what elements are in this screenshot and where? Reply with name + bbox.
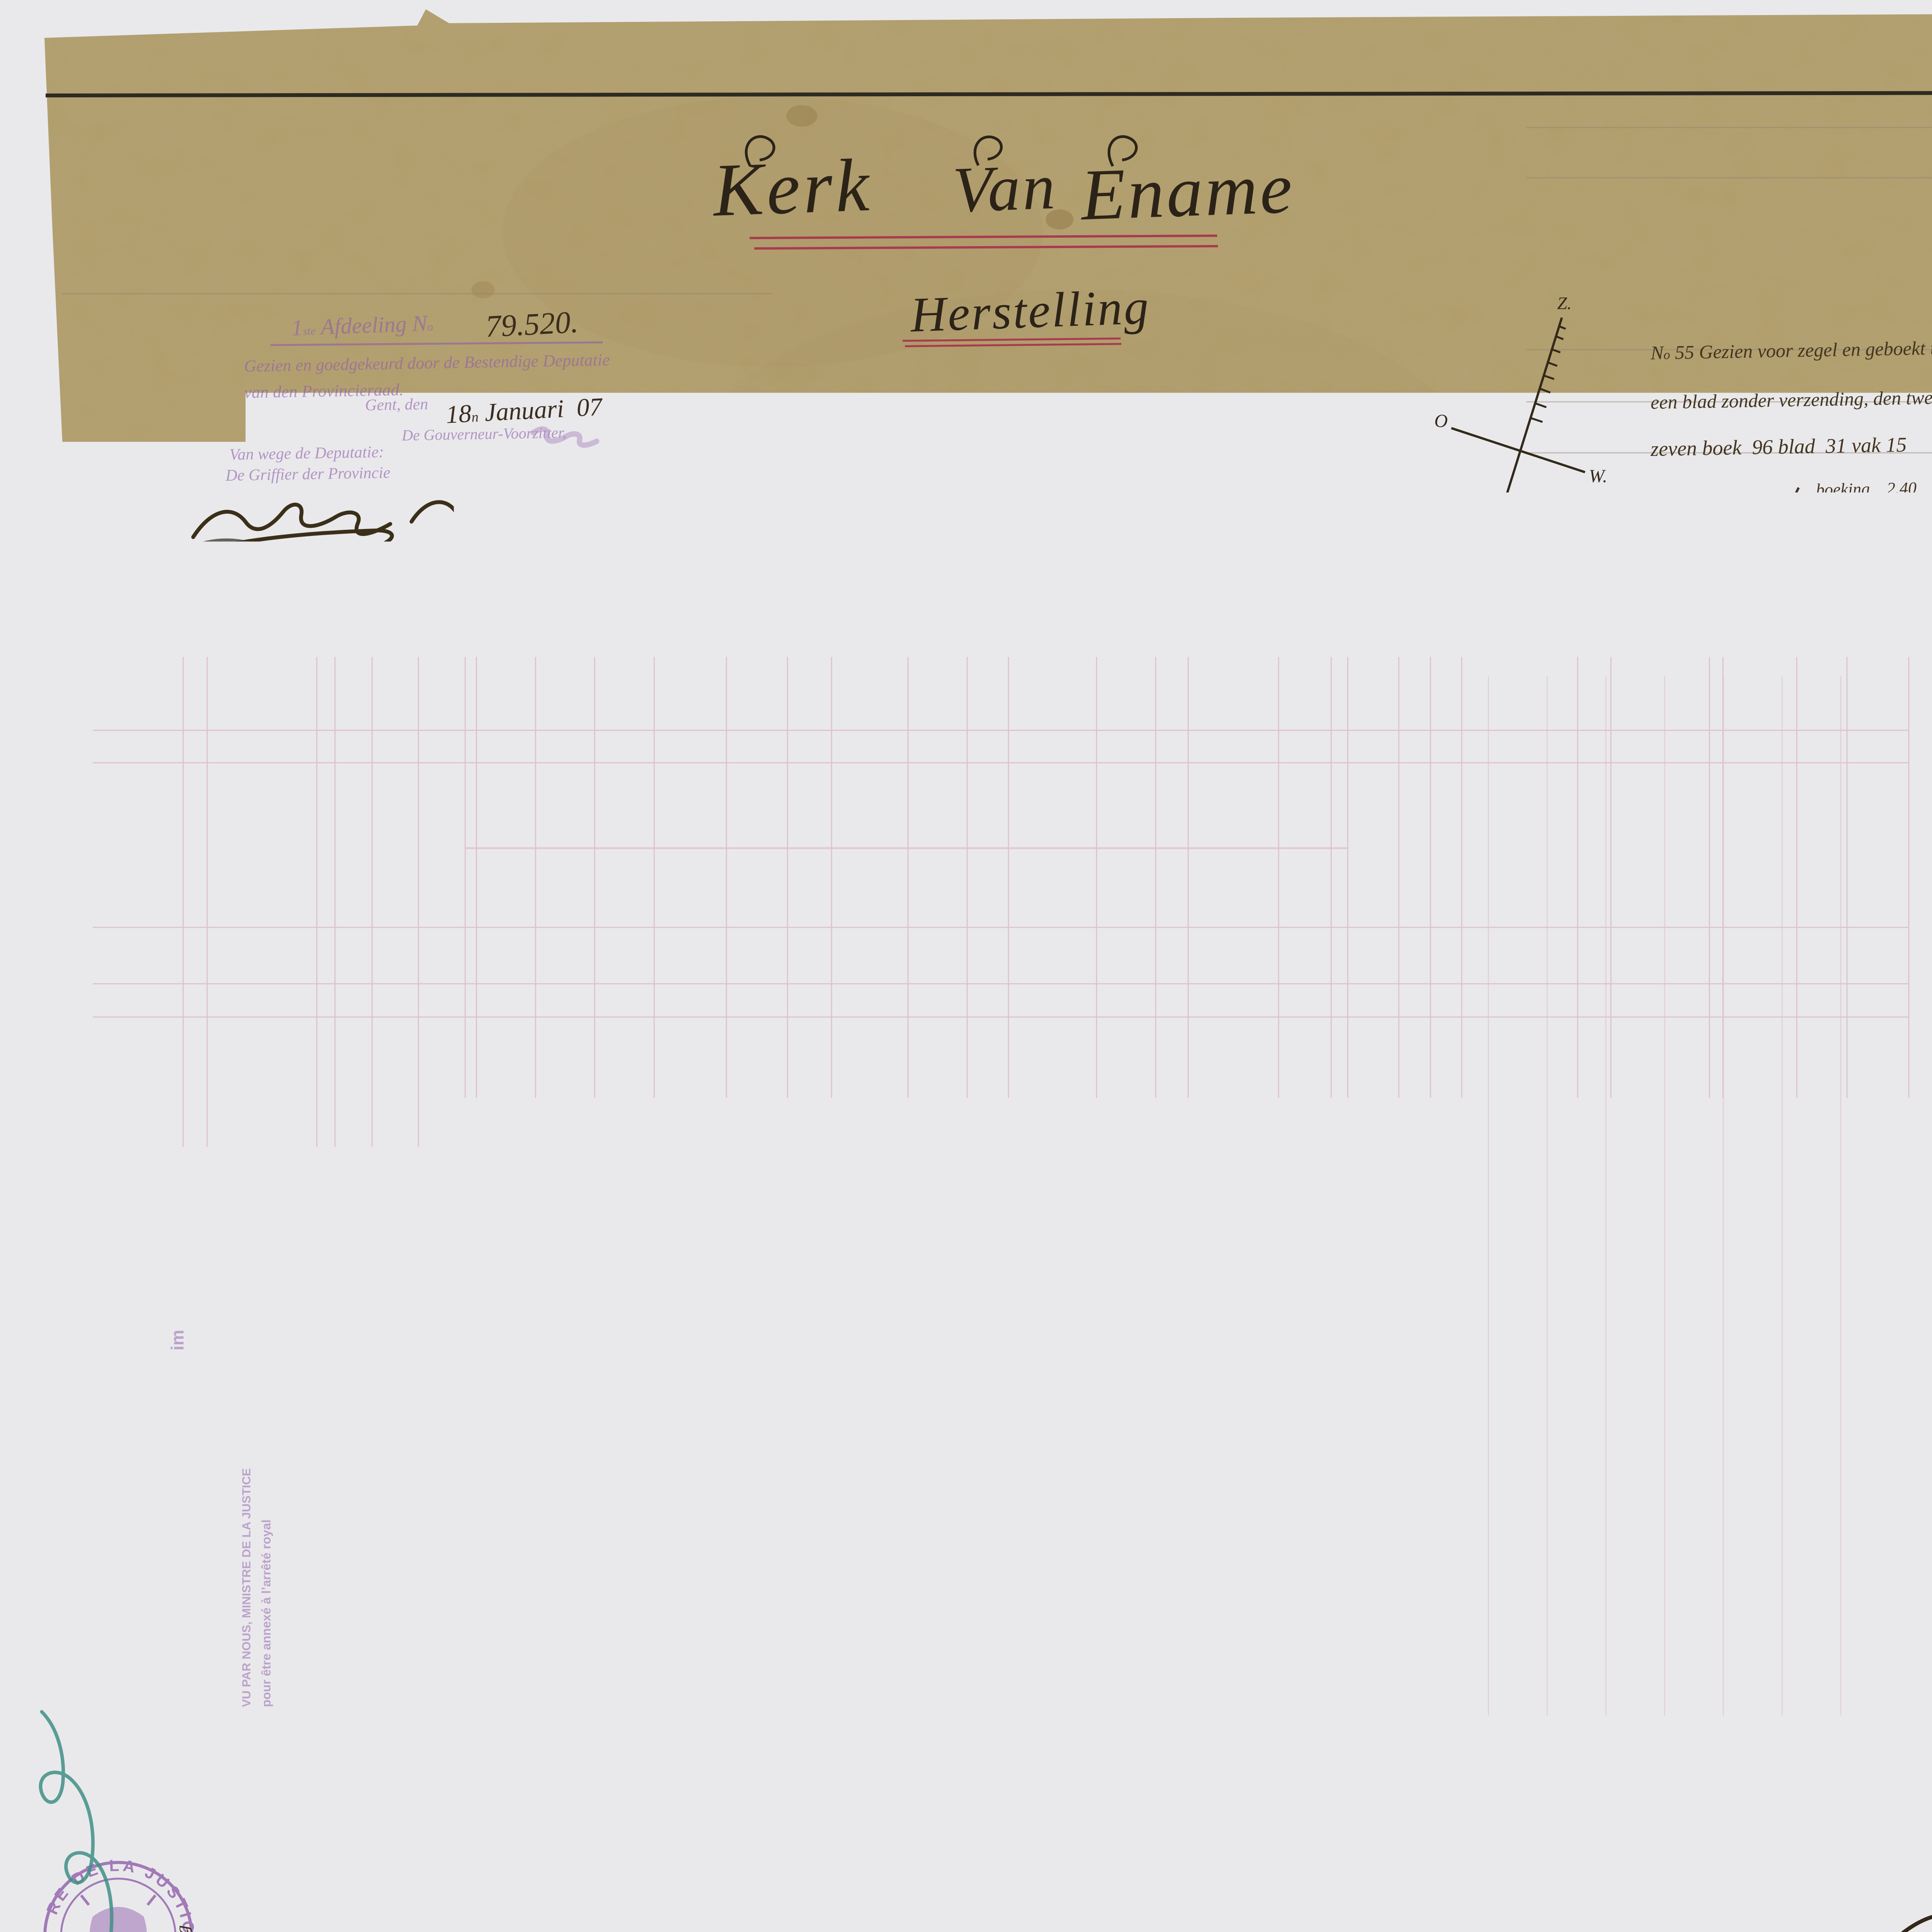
svg-text:0.90: 0.90 [1313, 1006, 1341, 1026]
svg-text:2.35: 2.35 [135, 1117, 152, 1144]
svg-text:1.55: 1.55 [407, 1699, 430, 1715]
svg-text:1.60: 1.60 [548, 1699, 571, 1715]
svg-text:verslag van: verslag van [1696, 1852, 1782, 1873]
svg-text:Van: Van [952, 151, 1058, 226]
svg-text:1.15: 1.15 [636, 1006, 665, 1026]
svg-text:.61: .61 [1023, 1700, 1040, 1715]
svg-text:im: im [167, 1330, 187, 1350]
svg-text:1.00: 1.00 [1790, 798, 1807, 825]
svg-text:62½: 62½ [604, 692, 628, 708]
svg-text:Herstelling: Herstelling [909, 279, 1151, 342]
svg-text:1.00: 1.00 [1358, 1193, 1389, 1213]
svg-text:1.19: 1.19 [1146, 1364, 1174, 1383]
svg-text:2.85: 2.85 [202, 1501, 218, 1527]
svg-text:0.88: 0.88 [1687, 1718, 1711, 1734]
svg-text:1.15: 1.15 [976, 1006, 1004, 1026]
svg-text:De Griffier der Provincie: De Griffier der Provincie [225, 464, 390, 485]
svg-text:0.85: 0.85 [1867, 1718, 1891, 1734]
svg-text:0.90: 0.90 [1748, 694, 1772, 709]
svg-text:0.88: 0.88 [1447, 1718, 1471, 1734]
svg-text:1.00: 1.00 [371, 1014, 385, 1036]
svg-text:.60: .60 [500, 1700, 517, 1715]
svg-text:6.80: 6.80 [358, 895, 378, 926]
svg-text:2.00: 2.00 [1790, 923, 1807, 951]
svg-text:VU PAR NOUS, MINISTRE DE LA JU: VU PAR NOUS, MINISTRE DE LA JUSTICE [240, 1468, 253, 1707]
svg-text:0.93: 0.93 [809, 1699, 832, 1715]
svg-text:1.60: 1.60 [1242, 692, 1265, 708]
svg-text:zeven boek 96 blad 31 vak 15: zeven boek 96 blad 31 vak 15 [1650, 433, 1907, 461]
svg-text:2.60: 2.60 [551, 1006, 579, 1026]
svg-text:.61: .61 [1125, 1700, 1142, 1715]
svg-text:0.85: 0.85 [1867, 694, 1891, 709]
svg-text:62½: 62½ [1019, 692, 1043, 708]
svg-text:62½: 62½ [774, 692, 798, 708]
svg-text:19.40: 19.40 [1058, 1562, 1105, 1586]
svg-text:2.20: 2.20 [135, 1206, 152, 1233]
svg-text:42½: 42½ [1421, 714, 1442, 728]
svg-text:2.60: 2.60 [551, 1364, 579, 1383]
svg-text:6.80: 6.80 [188, 1536, 204, 1561]
svg-text:1.60: 1.60 [553, 692, 577, 708]
svg-text:0.90: 0.90 [1748, 1718, 1772, 1734]
svg-text:1.15: 1.15 [805, 1006, 833, 1026]
svg-text:.62: .62 [848, 1700, 865, 1715]
svg-text:0.90: 0.90 [471, 1364, 500, 1383]
svg-text:2.60: 2.60 [890, 1006, 918, 1026]
svg-text:De Schrijver,: De Schrijver, [1699, 1882, 1798, 1903]
svg-text:Ontvangen voor: Ontvangen voor [1650, 486, 1776, 510]
svg-text:0.55: 0.55 [383, 1009, 405, 1024]
svg-text:1.25: 1.25 [287, 1699, 311, 1715]
svg-text:2.64: 2.64 [1232, 1006, 1260, 1026]
svg-text:0.88: 0.88 [1808, 694, 1832, 709]
svg-text:35: 35 [406, 1010, 418, 1023]
svg-text:3.65: 3.65 [910, 1530, 927, 1558]
svg-text:19.40 m.: 19.40 m. [940, 1197, 1022, 1226]
svg-text:0.90: 0.90 [1790, 844, 1807, 871]
svg-text:62½: 62½ [672, 692, 696, 708]
svg-text:1.00: 1.00 [1790, 978, 1807, 1005]
svg-text:9.80: 9.80 [895, 1170, 914, 1200]
svg-text:1.60: 1.60 [723, 692, 747, 708]
svg-text:1.60: 1.60 [1243, 1699, 1267, 1715]
svg-text:pour être annexé à l’arrêté ro: pour être annexé à l’arrêté royal [259, 1519, 273, 1707]
svg-text:0.93: 0.93 [1157, 1699, 1180, 1715]
svg-text:0.93: 0.93 [1156, 692, 1180, 708]
svg-text:2.35: 2.35 [135, 1330, 152, 1357]
svg-text:1.62½: 1.62½ [1787, 1430, 1804, 1468]
svg-text:1.60: 1.60 [1070, 692, 1094, 708]
svg-text:GEZIEN DOOR ONS, MINISTER VAN: GEZIEN DOOR ONS, MINISTER VAN JUSTITIE [205, 1729, 218, 1932]
svg-text:0.88: 0.88 [1569, 694, 1593, 709]
svg-text:Gent, den: Gent, den [365, 395, 428, 414]
svg-text:0.50: 0.50 [222, 1572, 235, 1592]
svg-text:0.88: 0.88 [1687, 694, 1711, 709]
svg-text:0.88: 0.88 [1447, 694, 1471, 709]
svg-text:0.92: 0.92 [983, 692, 1007, 708]
svg-text:0.50: 0.50 [252, 1009, 273, 1024]
svg-text:1.00: 1.00 [906, 964, 922, 990]
svg-text:1.14: 1.14 [805, 1364, 833, 1383]
svg-text:0.86: 0.86 [463, 1699, 486, 1715]
svg-text:2.30: 2.30 [189, 1371, 220, 1391]
svg-text:W.: W. [1589, 466, 1607, 486]
svg-text:O: O [1434, 411, 1448, 431]
svg-text:1.55: 1.55 [176, 1005, 204, 1024]
svg-text:2.60: 2.60 [1061, 1006, 1089, 1026]
svg-text:.60: .60 [1298, 1700, 1315, 1715]
svg-text:1.60: 1.60 [897, 692, 921, 708]
svg-text:De DD Ontvanger,: De DD Ontvanger, [1880, 566, 1932, 588]
svg-text:1.70: 1.70 [1348, 1699, 1371, 1715]
svg-text:0.70: 0.70 [308, 1009, 329, 1024]
svg-text:5.25: 5.25 [1841, 908, 1858, 935]
svg-text:0.60: 0.60 [1191, 692, 1215, 708]
svg-text:1.76½: 1.76½ [1341, 692, 1375, 708]
svg-text:De Voorzitter.: De Voorzitter. [1921, 1880, 1932, 1902]
svg-text:62½: 62½ [1121, 692, 1145, 708]
svg-text:6.90: 6.90 [87, 1257, 106, 1287]
svg-text:7..45: 7..45 [1540, 1731, 1578, 1753]
svg-text:7.45: 7.45 [1592, 619, 1626, 643]
svg-text:2.60: 2.60 [890, 1364, 918, 1383]
svg-text:1.60: 1.60 [896, 1699, 920, 1715]
svg-text:3.65: 3.65 [905, 884, 923, 913]
svg-text:1.15: 1.15 [1146, 1006, 1174, 1026]
svg-text:zegel 2.50: zegel 2.50 [1815, 506, 1915, 526]
svg-text:0.95: 0.95 [634, 1699, 657, 1715]
svg-text:0.90: 0.90 [1508, 1718, 1532, 1734]
svg-text:1.00: 1.00 [190, 1177, 204, 1200]
svg-text:.62: .62 [951, 1700, 968, 1715]
svg-text:2.80: 2.80 [189, 1393, 220, 1413]
svg-text:79.520.: 79.520. [485, 305, 579, 344]
svg-text:boeking 2.40: boeking 2.40 [1816, 478, 1917, 499]
svg-text:0.42½: 0.42½ [1373, 1687, 1403, 1702]
svg-text:0.94: 0.94 [984, 1699, 1007, 1715]
svg-text:vier franken negentig centieme: vier franken negentig centiemen [1650, 530, 1899, 556]
svg-text:0.85: 0.85 [1628, 694, 1652, 709]
svg-text:.60: .60 [602, 1700, 619, 1715]
svg-text:0.55: 0.55 [339, 1009, 360, 1024]
svg-text:4.45: 4.45 [351, 1696, 364, 1716]
svg-text:3.37½: 3.37½ [1785, 1082, 1802, 1121]
svg-text:Van wege de Deputatie:: Van wege de Deputatie: [229, 443, 384, 464]
svg-text:0.55: 0.55 [225, 1009, 246, 1024]
svg-text:1.19: 1.19 [636, 1364, 665, 1383]
svg-text:om gevoegd te worden bij het k: om gevoegd te worden bij het koninklijk [223, 1761, 235, 1932]
svg-text:1.62½: 1.62½ [1787, 1619, 1804, 1658]
svg-text:1.00: 1.00 [906, 1440, 922, 1464]
svg-text:19.40 m: 19.40 m [925, 832, 991, 859]
svg-text:7 Aug: 7 Aug [172, 1925, 192, 1932]
svg-text:2.50: 2.50 [721, 1364, 749, 1383]
svg-text:1.90: 1.90 [1790, 1163, 1807, 1190]
svg-text:62½: 62½ [846, 692, 870, 708]
svg-text:5.80: 5.80 [262, 992, 293, 1012]
svg-text:0.90: 0.90 [471, 1006, 500, 1026]
svg-text:2.60: 2.60 [1061, 1364, 1089, 1383]
svg-text:Z.: Z. [1557, 293, 1571, 313]
svg-text:J 7 avril 1907.: J 7 avril 1907. [200, 1595, 221, 1708]
svg-text:61½: 61½ [773, 1699, 796, 1715]
svg-text:3.37½: 3.37½ [1785, 1302, 1802, 1341]
svg-text:Kerk: Kerk [711, 143, 873, 232]
svg-text:62½: 62½ [502, 692, 526, 708]
svg-text:1.19: 1.19 [976, 1364, 1004, 1383]
svg-text:1.60: 1.60 [1071, 1699, 1094, 1715]
svg-text:5.25: 5.25 [1840, 1553, 1857, 1580]
svg-text:0.85: 0.85 [1628, 1718, 1652, 1734]
svg-text:1.76½: 1.76½ [442, 692, 475, 708]
svg-text:1.00: 1.00 [510, 1193, 541, 1213]
svg-text:besluit van: besluit van [238, 1906, 254, 1932]
svg-text:61½: 61½ [670, 1699, 694, 1715]
svg-text:1.43: 1.43 [381, 1385, 395, 1406]
svg-text:2.00: 2.00 [1787, 1522, 1804, 1549]
svg-text:0.90: 0.90 [1313, 1364, 1341, 1383]
svg-text:0.90: 0.90 [1508, 694, 1532, 709]
svg-text:0.55: 0.55 [277, 1009, 298, 1024]
svg-text:2.56: 2.56 [721, 1006, 749, 1026]
svg-text:2.60: 2.60 [1232, 1364, 1260, 1383]
svg-text:0.94: 0.94 [810, 692, 834, 708]
svg-text:1.60: 1.60 [722, 1699, 745, 1715]
svg-text:0.88: 0.88 [1808, 1718, 1832, 1734]
svg-text:62½: 62½ [948, 692, 972, 708]
svg-text:.60: .60 [1295, 692, 1313, 708]
svg-text:.60: .60 [1196, 1700, 1213, 1715]
svg-text:0.88: 0.88 [638, 692, 662, 708]
svg-text:1.00: 1.00 [371, 1323, 385, 1345]
svg-text:0.70: 0.70 [222, 1614, 235, 1635]
